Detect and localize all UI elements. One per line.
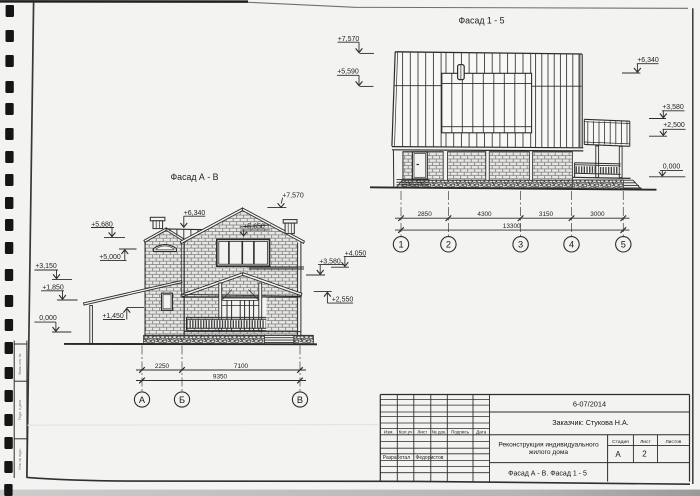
svg-text:+7,570: +7,570 bbox=[282, 192, 304, 199]
svg-text:В: В bbox=[297, 395, 303, 405]
svg-text:5: 5 bbox=[621, 240, 626, 250]
svg-text:А: А bbox=[615, 450, 621, 459]
svg-text:3000: 3000 bbox=[590, 211, 605, 218]
svg-text:6-07/2014: 6-07/2014 bbox=[573, 399, 606, 408]
svg-text:0,000: 0,000 bbox=[39, 315, 57, 322]
svg-text:13300: 13300 bbox=[503, 223, 521, 230]
svg-text:3150: 3150 bbox=[539, 211, 554, 218]
svg-text:2: 2 bbox=[642, 449, 647, 458]
svg-text:Взам. инв. №: Взам. инв. № bbox=[18, 353, 22, 374]
svg-text:Лист: Лист bbox=[417, 429, 428, 434]
svg-text:№ док.: № док. bbox=[432, 429, 447, 434]
svg-text:+3,150: +3,150 bbox=[35, 263, 57, 270]
svg-text:Фасад А - В: Фасад А - В bbox=[170, 172, 218, 182]
svg-text:9350: 9350 bbox=[213, 374, 228, 381]
svg-text:Стадия: Стадия bbox=[612, 439, 629, 445]
svg-text:Кол.уч: Кол.уч bbox=[399, 429, 413, 434]
svg-text:2250: 2250 bbox=[155, 363, 170, 370]
svg-text:+2,550: +2,550 bbox=[332, 297, 354, 304]
svg-text:1: 1 bbox=[398, 240, 403, 250]
svg-text:Фасад 1 - 5: Фасад 1 - 5 bbox=[458, 15, 504, 25]
svg-text:Заказчик: Стукова Н.А.: Заказчик: Стукова Н.А. bbox=[552, 418, 629, 427]
svg-text:Реконструкция индивидуального: Реконструкция индивидуального bbox=[498, 442, 599, 449]
svg-text:0,000: 0,000 bbox=[663, 164, 681, 171]
svg-text:7100: 7100 bbox=[234, 363, 249, 370]
svg-text:+5,650: +5,650 bbox=[243, 224, 265, 231]
svg-text:Листов: Листов bbox=[665, 439, 681, 445]
svg-text:А: А bbox=[139, 395, 146, 405]
svg-text:Федористов: Федористов bbox=[416, 455, 444, 461]
svg-text:Б: Б bbox=[179, 395, 185, 405]
svg-text:4300: 4300 bbox=[477, 211, 492, 218]
svg-text:2850: 2850 bbox=[418, 211, 433, 218]
svg-text:Лист: Лист bbox=[640, 439, 651, 445]
svg-text:Подп. и дата: Подп. и дата bbox=[18, 400, 22, 420]
svg-text:Разработал: Разработал bbox=[383, 455, 410, 461]
svg-text:4: 4 bbox=[569, 240, 574, 250]
svg-text:Дата: Дата bbox=[476, 429, 487, 434]
svg-text:+3,580: +3,580 bbox=[662, 104, 684, 111]
svg-text:жилого дома: жилого дома bbox=[529, 449, 568, 456]
svg-text:Подпись: Подпись bbox=[451, 429, 470, 434]
svg-text:Фасад А - В. Фасад 1 - 5: Фасад А - В. Фасад 1 - 5 bbox=[508, 470, 587, 477]
svg-text:Изм.: Изм. bbox=[384, 429, 394, 434]
svg-text:+2,500: +2,500 bbox=[663, 122, 685, 129]
svg-text:Инв. № подл.: Инв. № подл. bbox=[18, 448, 22, 469]
svg-text:2: 2 bbox=[446, 240, 451, 250]
svg-text:+6,340: +6,340 bbox=[637, 57, 659, 64]
svg-text:3: 3 bbox=[518, 240, 523, 250]
svg-text:+5,590: +5,590 bbox=[337, 69, 359, 76]
